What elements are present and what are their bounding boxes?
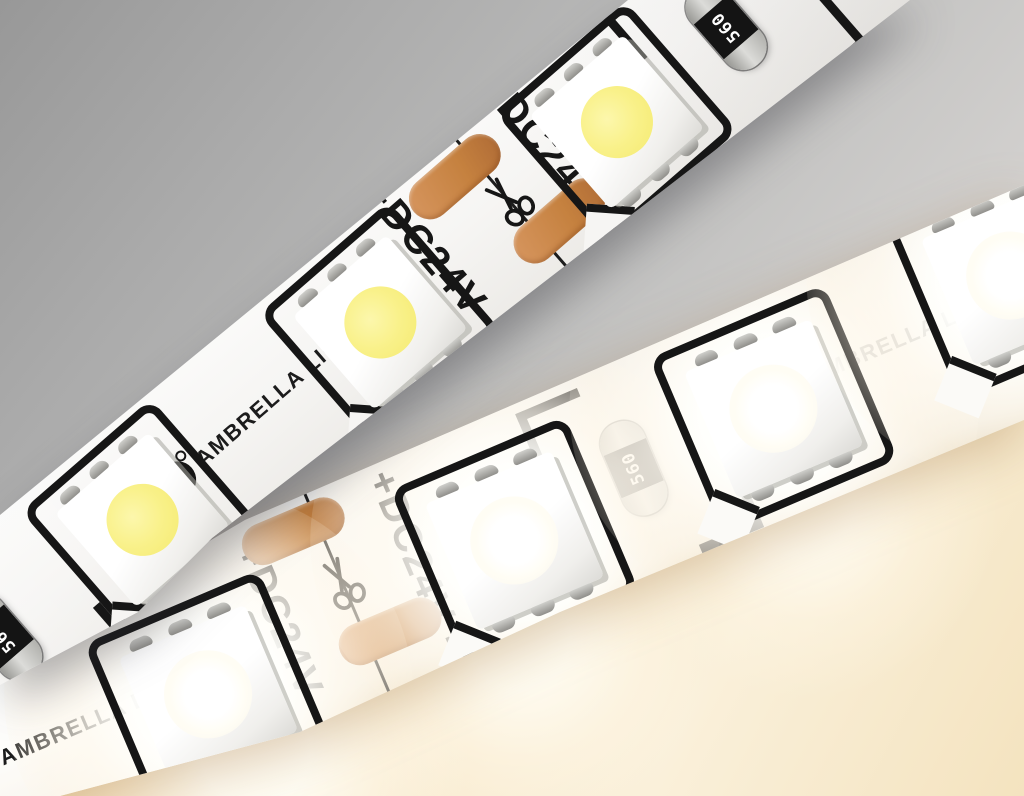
- segment-bracket-icon: [774, 0, 869, 86]
- led-emitter-off: [566, 71, 667, 172]
- led-outline-chamfer: [347, 404, 398, 455]
- led-emitter-off: [329, 272, 430, 373]
- led-emitter-off: [92, 469, 193, 570]
- product-photo: a AMBRELLA LIGHT +DC24V – +DC24V – a AMB…: [0, 0, 1024, 796]
- led-chip-unlit: [259, 201, 502, 444]
- led-strip-upper: a AMBRELLA LIGHT +DC24V – +DC24V – 56056…: [0, 0, 1024, 796]
- led-outline-chamfer: [584, 204, 635, 255]
- led-pin: [204, 534, 228, 557]
- led-outline-chamfer: [109, 601, 160, 652]
- upper-strip-shadow-wrap: a AMBRELLA LIGHT +DC24V – +DC24V – 56056…: [0, 0, 1024, 796]
- strip-upper-content: a AMBRELLA LIGHT +DC24V – +DC24V – 56056…: [0, 0, 957, 796]
- resistor: 560: [0, 585, 51, 689]
- resistor-value-label: 560: [708, 8, 745, 47]
- resistor-value-label: 560: [0, 618, 20, 657]
- strip-sheen: [0, 0, 957, 796]
- led-pin: [146, 584, 170, 607]
- resistor: 560: [677, 0, 776, 79]
- led-pin: [383, 387, 407, 410]
- led-pin: [175, 559, 199, 582]
